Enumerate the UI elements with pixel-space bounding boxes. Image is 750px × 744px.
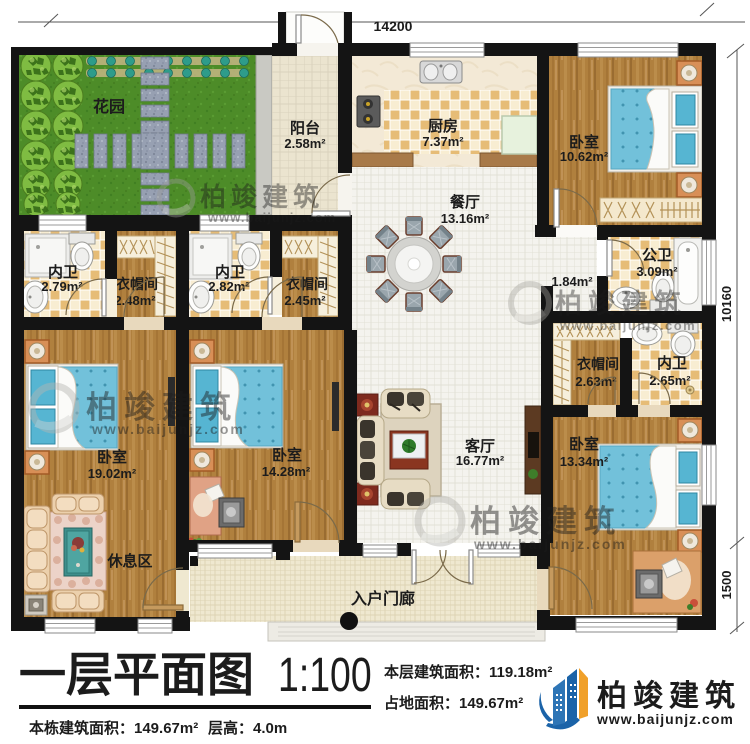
svg-text:2.65m²: 2.65m² [649,373,691,388]
svg-text:内卫: 内卫 [657,354,687,372]
svg-text:占地面积：149.67m²: 占地面积：149.67m² [384,694,523,712]
svg-text:柏竣建筑: 柏竣建筑 [470,504,622,539]
svg-text:花园: 花园 [93,97,125,116]
svg-text:2.45m²: 2.45m² [284,293,326,308]
svg-text:本栋建筑面积：149.67m²: 本栋建筑面积：149.67m² [29,719,198,737]
svg-text:2.48m²: 2.48m² [114,293,156,308]
svg-text:7.37m²: 7.37m² [422,134,464,149]
svg-text:卧室: 卧室 [569,435,599,453]
svg-text:公卫: 公卫 [642,247,672,264]
svg-text:层高：4.0m: 层高：4.0m [208,719,287,737]
svg-text:16.77m²: 16.77m² [456,453,505,468]
svg-text:柏竣建筑: 柏竣建筑 [200,182,324,212]
svg-text:1:100: 1:100 [278,649,372,703]
svg-text:10.62m²: 10.62m² [560,149,609,164]
svg-text:一层平面图: 一层平面图 [19,648,254,701]
svg-text:14.28m²: 14.28m² [262,464,311,479]
svg-text:1.84m²: 1.84m² [551,274,593,289]
svg-text:厨房: 厨房 [428,117,458,135]
svg-text:本层建筑面积：119.18m²: 本层建筑面积：119.18m² [384,663,552,681]
svg-text:13.34m²: 13.34m² [560,454,609,469]
svg-text:1500: 1500 [719,571,734,600]
svg-text:www.baijunjz.com: www.baijunjz.com [207,210,336,225]
svg-text:www.baijunjz.com: www.baijunjz.com [596,711,734,727]
svg-text:2.63m²: 2.63m² [575,374,617,389]
svg-text:衣帽间: 衣帽间 [577,356,619,372]
svg-text:柏竣建筑: 柏竣建筑 [86,390,238,425]
svg-text:入户门廊: 入户门廊 [351,589,415,608]
svg-text:休息区: 休息区 [106,552,152,570]
svg-text:卧室: 卧室 [272,446,302,464]
svg-text:柏竣建筑: 柏竣建筑 [555,288,687,319]
svg-text:阳台: 阳台 [290,119,320,137]
svg-text:10160: 10160 [719,286,734,322]
svg-text:www.baijunjz.com: www.baijunjz.com [473,536,627,552]
svg-text:19.02m²: 19.02m² [88,466,137,481]
svg-text:13.16m²: 13.16m² [441,211,490,226]
svg-text:2.79m²: 2.79m² [41,279,83,294]
svg-text:柏竣建筑: 柏竣建筑 [597,679,741,713]
svg-text:卧室: 卧室 [97,448,127,466]
svg-text:www.baijunjz.com: www.baijunjz.com [559,318,696,333]
svg-text:餐厅: 餐厅 [450,193,480,211]
svg-text:2.58m²: 2.58m² [284,136,326,151]
svg-text:www.baijunjz.com: www.baijunjz.com [91,421,245,437]
svg-text:14200: 14200 [374,18,413,34]
